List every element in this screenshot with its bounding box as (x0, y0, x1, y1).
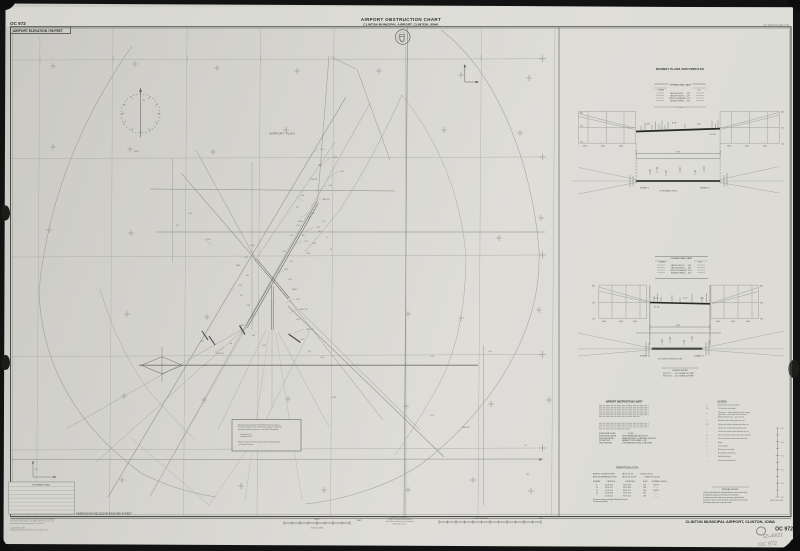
svg-text:RWY 3/21 . . . . 0.4% GRADE 52: RWY 3/21 . . . . 0.4% GRADE 5297 FEET (663, 372, 694, 375)
svg-text:DIMENSIONS AND ELEVATIONS A: DIMENSIONS AND ELEVATIONS ARE IN FEET (76, 511, 132, 515)
svg-text:2000: 2000 (539, 518, 543, 520)
svg-text:x 735: x 735 (312, 243, 316, 245)
svg-text:3/21: 3/21 (698, 89, 701, 91)
svg-text:x 741: x 741 (340, 171, 344, 173)
svg-text:3000: 3000 (746, 321, 750, 323)
svg-text:800: 800 (781, 112, 784, 114)
svg-text:14: 14 (596, 490, 598, 492)
svg-text:BLDG 716: BLDG 716 (300, 309, 308, 311)
svg-text:PROFILE NOTES: PROFILE NOTES (672, 370, 688, 372)
svg-text:RUNWAY PLANS AND PROFILES: RUNWAY PLANS AND PROFILES (656, 67, 704, 71)
svg-text:POLE 731: POLE 731 (310, 179, 317, 181)
svg-text:5297': 5297' (676, 152, 681, 154)
svg-text:x 730: x 730 (306, 253, 310, 255)
svg-text:AIRPORT OBSTRUCTION CHART: AIRPORT OBSTRUCTION CHART (606, 401, 643, 404)
svg-text:WIND T: WIND T (292, 289, 298, 291)
svg-text:Longitude 90°20': Longitude 90°20' (240, 435, 253, 438)
svg-text:AIRPORT ELEVATION 708 FEET: AIRPORT ELEVATION 708 FEET (13, 29, 63, 33)
svg-text:90 19 55.1: 90 19 55.1 (623, 490, 631, 492)
svg-text:x 712: x 712 (244, 257, 248, 259)
svg-text:800: 800 (580, 113, 583, 115)
svg-text:739: 739 (318, 231, 321, 233)
svg-text:LONGITUDE: LONGITUDE (625, 481, 636, 483)
svg-text:◑: ◑ (707, 431, 708, 433)
svg-text:41 49 44.0: 41 49 44.0 (605, 495, 613, 497)
svg-text:4000: 4000 (583, 146, 587, 148)
svg-text:BLDG: BLDG (298, 221, 303, 223)
svg-text:0.2%: 0.2% (654, 298, 658, 300)
svg-text:5297 FT: 5297 FT (653, 485, 659, 487)
svg-text:— ″ —: — ″ — (653, 487, 658, 489)
svg-text:AIRPORT PLAN: AIRPORT PLAN (269, 132, 295, 136)
svg-text:— ″ —: — ″ — (653, 493, 658, 495)
svg-text:x 711: x 711 (296, 299, 300, 301)
svg-text:NO LIGHTED OBSTRUCTIONS: NO LIGHTED OBSTRUCTIONS (658, 359, 683, 361)
svg-text:RWY 14/32 . . . 0.3% GRADE 314: RWY 14/32 . . . 0.3% GRADE 3149 FEET (663, 374, 694, 377)
svg-text:90 19 45.0: 90 19 45.0 (623, 495, 631, 497)
svg-text:x 713: x 713 (288, 279, 292, 281)
svg-text:900: 900 (781, 428, 784, 430)
svg-text:650: 650 (781, 483, 784, 485)
svg-text:708: 708 (246, 275, 249, 277)
svg-text:x 704: x 704 (246, 305, 250, 307)
svg-text:SCALE 1:4,800: SCALE 1:4,800 (311, 527, 323, 530)
svg-text:SPECIAL NOTES: SPECIAL NOTES (722, 488, 739, 491)
svg-text:LATITUDE: LATITUDE (607, 480, 616, 483)
svg-text:FEET: FEET (357, 520, 363, 522)
svg-text:x 724: x 724 (300, 195, 304, 197)
svg-text:720: 720 (308, 351, 311, 353)
svg-text:x 7: x 7 (326, 237, 328, 239)
svg-text:OC 972: OC 972 (10, 21, 26, 26)
svg-text:x 731: x 731 (304, 241, 308, 243)
svg-text:EL 708: EL 708 (710, 134, 715, 136)
svg-text:RUNWAY: RUNWAY (593, 480, 601, 483)
svg-text:750: 750 (781, 456, 784, 458)
svg-text:x 718: x 718 (320, 357, 324, 359)
svg-text:2 150: 2 150 (683, 298, 687, 300)
svg-text:LONG 90°19' 45": LONG 90°19' 45" (640, 474, 653, 476)
svg-text:800: 800 (760, 285, 763, 287)
svg-text:x 708: x 708 (332, 397, 336, 399)
svg-text:in Records of Iowa.: in Records of Iowa. (239, 443, 254, 446)
svg-text:3000: 3000 (602, 321, 606, 323)
svg-text:704: 704 (643, 493, 646, 495)
svg-text:25/4: 25/4 (706, 424, 709, 426)
svg-text:TREE 724: TREE 724 (462, 427, 469, 429)
svg-text:x 712: x 712 (430, 415, 434, 417)
svg-text:x 741: x 741 (296, 225, 300, 227)
svg-text:708: 708 (643, 487, 646, 489)
svg-text:2000: 2000 (731, 321, 735, 323)
svg-text:RUNWAY 32: RUNWAY 32 (694, 355, 704, 358)
svg-text:746: 746 (308, 217, 311, 219)
svg-text:○: ○ (707, 427, 708, 429)
svg-text:AIRPORT REFERENCE POINT: AIRPORT REFERENCE POINT (593, 476, 617, 479)
svg-text:800: 800 (592, 285, 595, 287)
svg-text:41 49 38.9: 41 49 38.9 (605, 493, 613, 495)
svg-text:OPERATIONAL DATA: OPERATIONAL DATA (670, 257, 692, 260)
svg-text:0.3%: 0.3% (700, 298, 704, 300)
svg-text:x 714: x 714 (296, 319, 300, 321)
svg-text:AIRPORT LOCATION POINT: AIRPORT LOCATION POINT (593, 473, 615, 476)
svg-text:715: 715 (290, 235, 293, 237)
svg-text:719: 719 (290, 261, 293, 263)
svg-text:RUNWAY 3: RUNWAY 3 (640, 187, 649, 190)
svg-text:POLE 704: POLE 704 (216, 353, 223, 355)
svg-text:x 716: x 716 (488, 351, 492, 353)
svg-text:21: 21 (596, 487, 598, 489)
svg-text:700: 700 (580, 141, 583, 143)
svg-text:1000: 1000 (633, 321, 637, 323)
svg-text:90 19 37.3: 90 19 37.3 (623, 493, 631, 495)
svg-text:TREE 728: TREE 728 (306, 329, 313, 331)
svg-text:NO RUNWAY LIGHTS: NO RUNWAY LIGHTS (660, 190, 678, 193)
svg-text:703: 703 (176, 225, 179, 227)
svg-text:x 706: x 706 (188, 213, 192, 215)
svg-text:3149': 3149' (676, 325, 681, 327)
svg-text:x 716: x 716 (284, 269, 288, 271)
svg-text:by airport facilities; precisi: by airport facilities; precision is to t… (238, 428, 279, 431)
svg-text:3: 3 (596, 485, 597, 487)
svg-text:POLE: POLE (250, 245, 254, 247)
svg-text:500 0: 500 0 (314, 519, 320, 521)
svg-text:14/32: 14/32 (698, 261, 702, 263)
svg-text:1000: 1000 (716, 321, 720, 323)
svg-text:600: 600 (781, 497, 784, 499)
svg-text:3149 FT: 3149 FT (653, 490, 659, 492)
svg-text:706: 706 (204, 365, 207, 367)
svg-text:0.3%: 0.3% (697, 124, 701, 126)
svg-text:RUNWAY 14: RUNWAY 14 (640, 355, 650, 358)
svg-text:x 729: x 729 (316, 227, 320, 229)
svg-text:x 697: x 697 (262, 345, 266, 347)
svg-text:MAG: MAG (134, 150, 139, 153)
svg-text:3000: 3000 (745, 146, 749, 148)
svg-text:41 49 51.3: 41 49 51.3 (605, 490, 613, 492)
svg-text:CONTINENTAL SYSTEM, ZONE IOWA: CONTINENTAL SYSTEM, ZONE IOWA (622, 442, 653, 445)
svg-text:700: 700 (592, 319, 595, 321)
svg-text:708: 708 (643, 495, 646, 497)
svg-text:705: 705 (240, 295, 243, 297)
svg-text:4000: 4000 (763, 146, 767, 148)
svg-text:72: 72 (330, 249, 332, 251)
svg-text:⌖: ⌖ (707, 460, 708, 462)
svg-text:708 ▲: 708 ▲ (320, 149, 325, 151)
svg-text:2000: 2000 (619, 146, 623, 148)
svg-text:OPERATIONAL DATA: OPERATIONAL DATA (669, 84, 691, 87)
svg-text:2000: 2000 (619, 321, 623, 323)
svg-text:x 726: x 726 (333, 157, 337, 159)
svg-text:750: 750 (592, 303, 595, 305)
svg-text:41 50 02.1: 41 50 02.1 (605, 487, 613, 489)
svg-text:2000: 2000 (727, 146, 731, 148)
svg-text:0.4%: 0.4% (646, 124, 650, 126)
svg-text:x 709: x 709 (206, 239, 210, 241)
svg-text:∘: ∘ (707, 450, 708, 451)
svg-text:GRID INTERVAL: GRID INTERVAL (599, 442, 612, 445)
svg-text:708: 708 (526, 474, 529, 476)
svg-text:B 746: B 746 (672, 123, 676, 125)
svg-text:700: 700 (760, 319, 763, 321)
svg-text:750: 750 (580, 126, 583, 128)
svg-text:x 738: x 738 (328, 185, 332, 187)
svg-text:700: 700 (781, 143, 784, 145)
svg-text:750: 750 (781, 128, 784, 130)
svg-text:TREE: TREE (236, 265, 240, 267)
svg-text:x 736: x 736 (310, 213, 314, 215)
svg-text:750: 750 (35, 469, 38, 471)
svg-text:750: 750 (760, 303, 763, 305)
svg-text:*Proposed runways: *Proposed runways (593, 500, 608, 503)
svg-text:CLINTON MUNICIPAL AIRPORT,: CLINTON MUNICIPAL AIRPORT, CLINTON, IOWA (363, 22, 439, 26)
svg-text:LAT 41°49' 43.279": LAT 41°49' 43.279" (622, 476, 637, 479)
svg-text:3000: 3000 (601, 146, 605, 148)
svg-text:TREE 752: TREE 752 (322, 199, 329, 201)
svg-text:RUNWAY 21: RUNWAY 21 (700, 187, 710, 190)
svg-text:32: 32 (596, 493, 598, 495)
svg-text:MONUMENT DATA: MONUMENT DATA (32, 483, 50, 486)
svg-text:PROFILE: PROFILE (676, 107, 684, 109)
svg-text:698: 698 (252, 335, 255, 337)
svg-text:702: 702 (252, 315, 255, 317)
svg-text:800: 800 (781, 442, 784, 444)
svg-text:41 49 41.6: 41 49 41.6 (605, 485, 613, 487)
svg-text:1000 METERS: 1000 METERS (474, 518, 488, 520)
svg-text:x 722: x 722 (300, 339, 304, 341)
svg-text:Compiled: May 1953: Compiled: May 1953 (10, 527, 25, 529)
svg-text:x 701: x 701 (200, 341, 204, 343)
svg-text:700: 700 (781, 469, 784, 471)
svg-text:750: 750 (706, 408, 709, 410)
svg-text:706: 706 (643, 490, 646, 492)
svg-text:CLINTON MUNICIPAL AIRPORT,: CLINTON MUNICIPAL AIRPORT, CLINTON, IOWA (686, 519, 776, 524)
svg-text:LAT 41°49' 44": LAT 41°49' 44" (622, 473, 634, 476)
svg-text:— ″ —: — ″ — (653, 495, 658, 497)
svg-text:90 19 28.4: 90 19 28.4 (623, 487, 631, 489)
svg-text:dd: dd (230, 343, 232, 345)
svg-text:AIRPORT OBSTRUCTION CHART: AIRPORT OBSTRUCTION CHART (361, 17, 441, 22)
svg-text:703: 703 (643, 485, 646, 487)
svg-text:EL 706: EL 706 (654, 307, 659, 309)
svg-text:721: 721 (296, 207, 299, 209)
svg-text:x 73: x 73 (322, 221, 325, 223)
svg-text:x 718: x 718 (282, 251, 286, 253)
svg-text:RUNWAY LENGTH: RUNWAY LENGTH (652, 480, 667, 483)
svg-text:LONG 90°19' 44.612": LONG 90°19' 44.612" (644, 477, 661, 479)
svg-text:LEGEND: LEGEND (717, 402, 727, 404)
svg-text:90 19 52.8: 90 19 52.8 (623, 485, 631, 487)
svg-text:x 707: x 707 (238, 285, 242, 287)
svg-text:x 709: x 709 (430, 356, 434, 358)
svg-text:x 699: x 699 (240, 325, 244, 327)
svg-text:OPERATIONAL DATA: OPERATIONAL DATA (616, 467, 639, 470)
svg-text:x 71: x 71 (524, 445, 527, 447)
